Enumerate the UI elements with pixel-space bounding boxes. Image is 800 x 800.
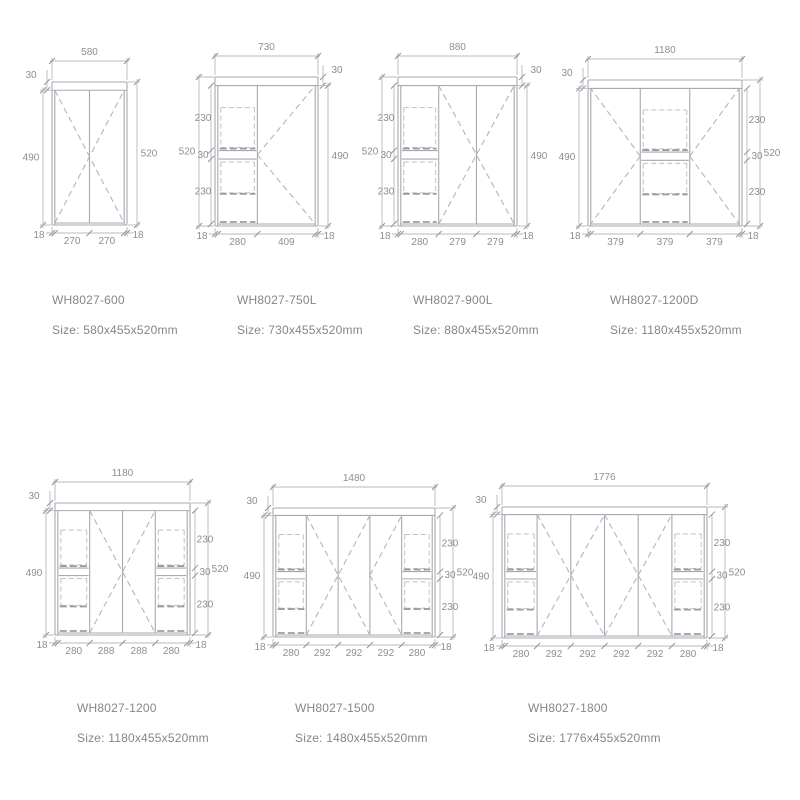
svg-text:292: 292 bbox=[647, 649, 664, 660]
svg-text:490: 490 bbox=[473, 571, 490, 582]
product-label-2: WH8027-750L Size: 730x455x520mm bbox=[237, 293, 363, 337]
svg-text:520: 520 bbox=[362, 147, 379, 158]
svg-text:30: 30 bbox=[246, 496, 258, 507]
svg-text:1180: 1180 bbox=[112, 468, 134, 479]
svg-text:520: 520 bbox=[457, 568, 474, 579]
svg-text:280: 280 bbox=[409, 648, 426, 659]
svg-text:292: 292 bbox=[377, 648, 394, 659]
model-size: Size: 1180x455x520mm bbox=[77, 731, 209, 745]
svg-text:30: 30 bbox=[25, 70, 37, 81]
svg-text:18: 18 bbox=[132, 230, 144, 241]
svg-text:288: 288 bbox=[131, 646, 148, 657]
cabinet-drawing-WH8027-1200: 118030490520230302301818280288288280 bbox=[26, 468, 229, 657]
svg-text:1180: 1180 bbox=[654, 45, 676, 56]
svg-text:379: 379 bbox=[657, 237, 674, 248]
svg-text:409: 409 bbox=[278, 237, 295, 248]
svg-text:230: 230 bbox=[378, 113, 395, 124]
svg-text:18: 18 bbox=[569, 231, 581, 242]
svg-text:30: 30 bbox=[751, 151, 763, 162]
svg-text:18: 18 bbox=[747, 231, 759, 242]
svg-text:18: 18 bbox=[196, 231, 208, 242]
svg-text:230: 230 bbox=[195, 187, 212, 198]
svg-text:292: 292 bbox=[579, 649, 596, 660]
svg-text:18: 18 bbox=[379, 231, 391, 242]
svg-text:280: 280 bbox=[513, 649, 530, 660]
svg-text:30: 30 bbox=[199, 567, 211, 578]
spec-sheet: 5803049052018182702707303052049023030230… bbox=[0, 0, 800, 800]
svg-text:490: 490 bbox=[559, 152, 576, 163]
svg-text:1480: 1480 bbox=[343, 473, 366, 484]
svg-text:230: 230 bbox=[197, 599, 214, 610]
svg-text:230: 230 bbox=[714, 538, 731, 549]
cabinet-dimension-drawings: 5803049052018182702707303052049023030230… bbox=[0, 0, 800, 800]
svg-text:230: 230 bbox=[749, 187, 766, 198]
svg-text:30: 30 bbox=[530, 65, 542, 76]
svg-text:490: 490 bbox=[531, 151, 548, 162]
model-size: Size: 730x455x520mm bbox=[237, 323, 363, 337]
product-label-4: WH8027-1200D Size: 1180x455x520mm bbox=[610, 293, 742, 337]
cabinet-drawing-WH8027-1500: 148030490520230302301818280292292292280 bbox=[244, 473, 474, 659]
svg-text:580: 580 bbox=[81, 47, 98, 58]
product-label-3: WH8027-900L Size: 880x455x520mm bbox=[413, 293, 539, 337]
svg-text:520: 520 bbox=[141, 149, 158, 160]
svg-text:490: 490 bbox=[244, 571, 261, 582]
svg-text:230: 230 bbox=[195, 113, 212, 124]
svg-text:880: 880 bbox=[449, 42, 466, 53]
model-size: Size: 1480x455x520mm bbox=[295, 731, 428, 745]
svg-text:279: 279 bbox=[487, 237, 504, 248]
model-size: Size: 1776x455x520mm bbox=[528, 731, 661, 745]
product-label-5: WH8027-1200 Size: 1180x455x520mm bbox=[77, 701, 209, 745]
svg-text:730: 730 bbox=[258, 42, 275, 53]
cabinet-drawing-WH8027-1800: 1776304905202303023018182802922922922922… bbox=[473, 472, 746, 660]
svg-text:270: 270 bbox=[64, 236, 81, 247]
svg-text:490: 490 bbox=[23, 153, 40, 164]
model-size: Size: 580x455x520mm bbox=[52, 323, 178, 337]
svg-text:30: 30 bbox=[716, 570, 728, 581]
svg-text:520: 520 bbox=[764, 148, 781, 159]
model-name: WH8027-600 bbox=[52, 293, 178, 307]
model-size: Size: 1180x455x520mm bbox=[610, 323, 742, 337]
cabinet-drawing-WH8027-750L: 73030520490230302301818280409 bbox=[179, 42, 349, 248]
svg-text:270: 270 bbox=[99, 236, 116, 247]
svg-text:30: 30 bbox=[561, 68, 573, 79]
svg-text:292: 292 bbox=[346, 648, 363, 659]
svg-text:520: 520 bbox=[212, 564, 229, 575]
svg-text:292: 292 bbox=[613, 649, 630, 660]
svg-text:18: 18 bbox=[323, 231, 335, 242]
svg-text:279: 279 bbox=[449, 237, 466, 248]
svg-text:18: 18 bbox=[254, 642, 266, 653]
cabinet-drawing-WH8027-900L: 88030520490230302301818280279279 bbox=[362, 42, 548, 248]
svg-text:18: 18 bbox=[440, 642, 452, 653]
svg-text:490: 490 bbox=[26, 568, 43, 579]
svg-text:1776: 1776 bbox=[593, 472, 616, 483]
svg-text:30: 30 bbox=[331, 65, 343, 76]
svg-text:280: 280 bbox=[411, 237, 428, 248]
svg-text:230: 230 bbox=[749, 115, 766, 126]
svg-text:230: 230 bbox=[714, 602, 731, 613]
svg-text:280: 280 bbox=[680, 649, 697, 660]
svg-text:18: 18 bbox=[195, 640, 207, 651]
svg-text:18: 18 bbox=[522, 231, 534, 242]
product-label-6: WH8027-1500 Size: 1480x455x520mm bbox=[295, 701, 428, 745]
model-name: WH8027-1200 bbox=[77, 701, 209, 715]
svg-text:490: 490 bbox=[332, 151, 349, 162]
svg-text:30: 30 bbox=[444, 570, 456, 581]
svg-text:18: 18 bbox=[712, 643, 724, 654]
cabinet-drawing-WH8027-1200D: 118030490520230302301818379379379 bbox=[559, 45, 781, 248]
model-name: WH8027-900L bbox=[413, 293, 539, 307]
svg-text:18: 18 bbox=[483, 643, 495, 654]
svg-text:280: 280 bbox=[163, 646, 180, 657]
svg-text:30: 30 bbox=[197, 150, 209, 161]
model-name: WH8027-1500 bbox=[295, 701, 428, 715]
cabinet-drawing-WH8027-600: 580304905201818270270 bbox=[23, 47, 158, 247]
svg-text:30: 30 bbox=[28, 491, 40, 502]
product-label-7: WH8027-1800 Size: 1776x455x520mm bbox=[528, 701, 661, 745]
svg-text:30: 30 bbox=[380, 150, 392, 161]
svg-text:230: 230 bbox=[197, 534, 214, 545]
svg-text:280: 280 bbox=[65, 646, 82, 657]
svg-text:280: 280 bbox=[283, 648, 300, 659]
svg-text:288: 288 bbox=[98, 646, 115, 657]
svg-text:18: 18 bbox=[36, 640, 48, 651]
svg-text:230: 230 bbox=[378, 187, 395, 198]
model-name: WH8027-1200D bbox=[610, 293, 742, 307]
svg-text:520: 520 bbox=[179, 147, 196, 158]
svg-text:18: 18 bbox=[33, 230, 45, 241]
svg-text:292: 292 bbox=[314, 648, 331, 659]
product-label-1: WH8027-600 Size: 580x455x520mm bbox=[52, 293, 178, 337]
svg-text:292: 292 bbox=[546, 649, 563, 660]
model-name: WH8027-1800 bbox=[528, 701, 661, 715]
svg-text:280: 280 bbox=[229, 237, 246, 248]
svg-text:379: 379 bbox=[607, 237, 624, 248]
svg-text:520: 520 bbox=[729, 568, 746, 579]
model-size: Size: 880x455x520mm bbox=[413, 323, 539, 337]
svg-text:230: 230 bbox=[442, 539, 459, 550]
svg-text:230: 230 bbox=[442, 602, 459, 613]
svg-text:379: 379 bbox=[706, 237, 723, 248]
model-name: WH8027-750L bbox=[237, 293, 363, 307]
svg-text:30: 30 bbox=[475, 495, 487, 506]
